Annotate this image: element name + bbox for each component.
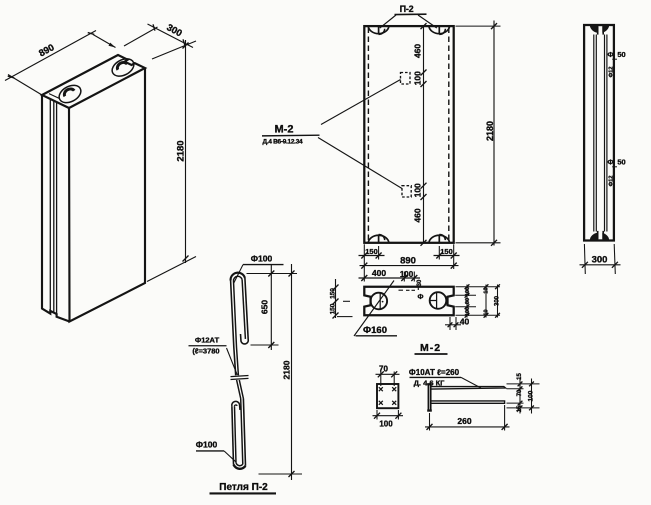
svg-text:100: 100 [400,270,414,279]
svg-text:100: 100 [413,183,423,197]
svg-text:100: 100 [379,419,393,428]
svg-text:2180: 2180 [176,140,187,161]
svg-text:Ф100: Ф100 [251,254,273,264]
svg-text:М-2: М-2 [275,124,294,136]
svg-text:10: 10 [484,309,490,315]
svg-text:Ф: Ф [608,160,614,167]
svg-text:(ℓ=3780: (ℓ=3780 [192,347,219,356]
svg-text:460: 460 [413,208,423,222]
svg-text:70: 70 [379,364,388,373]
svg-text:890: 890 [400,255,416,266]
svg-text:650: 650 [260,300,270,314]
svg-text:Ф12: Ф12 [609,67,615,78]
svg-text:50: 50 [617,158,625,167]
svg-text:П-2: П-2 [400,4,414,14]
svg-text:Ф12: Ф12 [609,176,615,187]
svg-text:Д. 4.6 КГ: Д. 4.6 КГ [414,378,446,387]
svg-text:100: 100 [413,71,423,85]
svg-text:80: 80 [465,298,471,304]
svg-text:Ф12АТ: Ф12АТ [195,336,220,345]
svg-text:Ф160: Ф160 [363,325,387,336]
svg-text:15: 15 [517,373,523,380]
svg-text:Ф: Ф [418,294,424,301]
svg-text:30: 30 [417,279,423,286]
svg-text:150: 150 [330,288,337,299]
svg-text:260: 260 [457,416,471,426]
svg-text:400: 400 [372,268,386,278]
svg-text:460: 460 [413,44,423,58]
svg-text:10: 10 [484,287,490,293]
svg-text:2180: 2180 [282,360,292,379]
svg-text:70: 70 [517,389,523,396]
svg-text:50: 50 [617,50,625,59]
svg-text:Ф: Ф [608,52,614,59]
svg-text:300: 300 [592,255,608,266]
svg-text:150: 150 [365,247,378,256]
svg-text:Д.4 В6-9.12.34: Д.4 В6-9.12.34 [263,138,304,145]
svg-text:100: 100 [465,287,471,296]
svg-text:40: 40 [460,317,470,327]
svg-text:2180: 2180 [485,121,495,141]
svg-text:М-2: М-2 [420,342,441,354]
svg-text:Ф10АТ ℓ=260: Ф10АТ ℓ=260 [409,368,460,377]
svg-text:100: 100 [465,307,471,316]
svg-text:Петля П-2: Петля П-2 [219,482,268,493]
svg-text:100: 100 [528,390,535,401]
svg-text:Ф100: Ф100 [196,440,218,450]
svg-text:150: 150 [440,247,453,256]
svg-text:300: 300 [495,295,501,306]
svg-text:150: 150 [330,303,337,314]
svg-text:15: 15 [517,405,523,412]
